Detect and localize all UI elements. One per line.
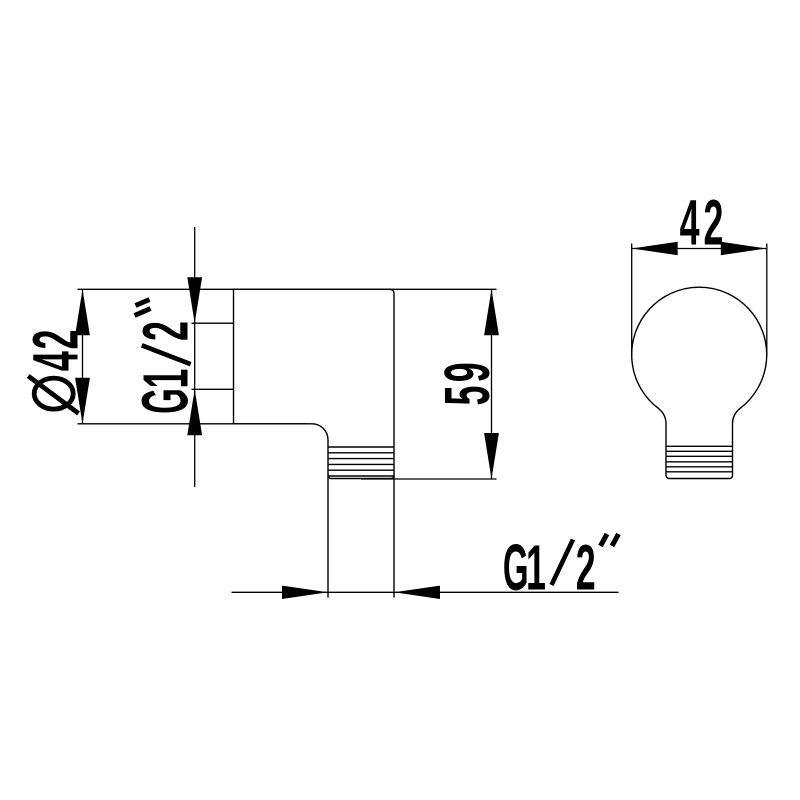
svg-text:42: 42 — [20, 328, 92, 371]
svg-text:59: 59 — [431, 359, 503, 406]
svg-text:1: 1 — [130, 369, 202, 389]
svg-text:2: 2 — [130, 321, 202, 341]
svg-text:42: 42 — [680, 187, 728, 259]
svg-text:G: G — [129, 388, 202, 414]
svg-text:1: 1 — [526, 532, 546, 604]
svg-text:G: G — [503, 532, 529, 605]
svg-text:2: 2 — [576, 532, 596, 604]
